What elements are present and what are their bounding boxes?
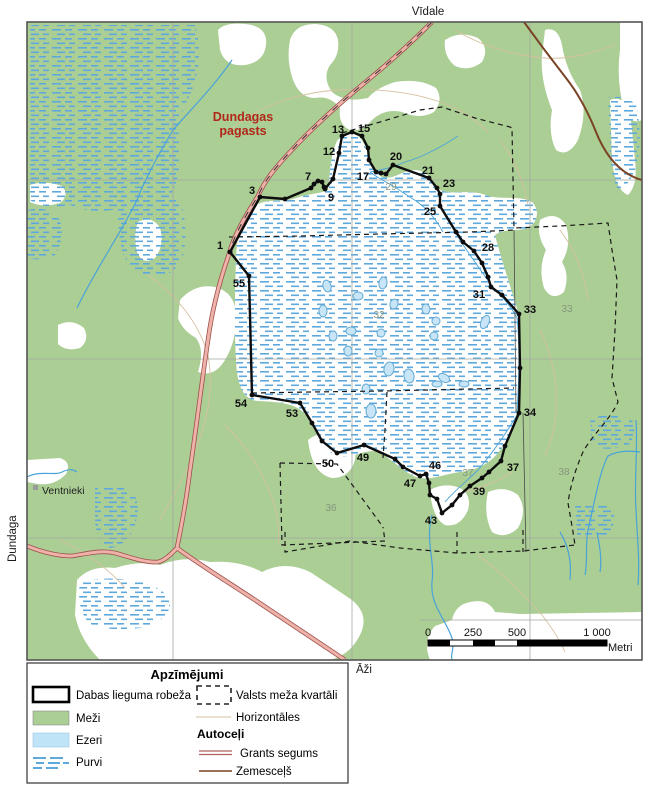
scale-bar-tick-label: 500: [508, 627, 526, 639]
boundary-point-dot: [454, 230, 459, 235]
boundary-point-dot: [366, 146, 371, 151]
scale-bar-tick-label: 1 000: [583, 627, 611, 639]
boundary-point-label: 9: [328, 192, 334, 204]
boundary-point-dot: [323, 187, 328, 192]
region-label: Dundagas pagasts: [213, 110, 273, 138]
boundary-point-dot: [335, 451, 340, 456]
boundary-point-label: 7: [305, 171, 311, 183]
boundary-point-dot: [480, 476, 485, 481]
legend-label-reserve-boundary: Dabas lieguma robeža: [76, 690, 192, 702]
boundary-point-dot: [350, 130, 355, 135]
legend-swatch-lakes: [33, 733, 69, 747]
map-svg: Vīdale Dundaga Āži: [0, 0, 650, 812]
boundary-point-label: 43: [425, 515, 437, 527]
boundary-point-label: 47: [404, 478, 416, 490]
boundary-point-dot: [424, 472, 429, 477]
boundary-point-dot: [316, 179, 321, 184]
boundary-point-dot: [312, 182, 317, 187]
boundary-point-dot: [309, 186, 314, 191]
legend-label-bogs: Purvi: [76, 757, 102, 769]
scale-bar-unit: Metri: [608, 642, 632, 654]
boundary-point-dot: [499, 459, 504, 464]
boundary-point-label: 33: [524, 304, 536, 316]
boundary-point-dot: [374, 170, 379, 175]
legend-title: Apzīmējumi: [151, 667, 224, 682]
boundary-point-dot: [468, 484, 473, 489]
boundary-point-label: 20: [390, 151, 402, 163]
boundary-point-dot: [418, 474, 423, 479]
boundary-point-dot: [489, 285, 494, 290]
boundary-point-dot: [472, 249, 477, 254]
boundary-point-label: 37: [507, 462, 519, 474]
forest-block-number: 38: [558, 467, 570, 478]
boundary-point-label: 46: [429, 460, 441, 472]
boundary-point-label: 3: [249, 185, 255, 197]
boundary-point-label: 53: [286, 408, 298, 420]
boundary-point-dot: [428, 493, 433, 498]
boundary-point-dot: [258, 195, 263, 200]
boundary-point-label: 55: [233, 278, 245, 290]
boundary-point-dot: [450, 503, 455, 508]
boundary-point-dot: [401, 465, 406, 470]
boundary-point-dot: [458, 493, 463, 498]
place-label: Ventnieki: [42, 485, 85, 497]
boundary-point-dot: [517, 411, 522, 416]
boundary-point-label: 13: [332, 124, 344, 136]
boundary-point-dot: [427, 481, 432, 486]
boundary-point-dot: [438, 204, 443, 209]
legend-label-forest: Meži: [76, 713, 100, 725]
boundary-point-label: 1: [217, 240, 223, 252]
scale-bar-tick-label: 250: [464, 627, 482, 639]
forest-block-number: 29: [385, 182, 397, 193]
neighbor-label-left: Dundaga: [7, 515, 19, 562]
boundary-point-dot: [379, 171, 384, 176]
neighbor-label-bottom: Āži: [356, 664, 372, 676]
scale-bar-tick-label: 0: [425, 627, 431, 639]
boundary-point-label: 21: [422, 165, 434, 177]
legend-label-blocks: Valsts meža kvartāli: [236, 690, 337, 702]
legend-swatch-reserve-boundary: [33, 687, 69, 702]
boundary-point-label: 25: [424, 206, 436, 218]
legend-roads-header: Autoceļi: [197, 727, 244, 741]
map-canvas: 293233363738 Ventnieki Dundagas pagasts …: [27, 22, 642, 660]
boundary-point-dot: [487, 470, 492, 475]
boundary-point-label: 34: [524, 407, 537, 419]
boundary-point-dot: [435, 497, 440, 502]
boundary-point-dot: [503, 444, 508, 449]
boundary-point-dot: [435, 186, 440, 191]
boundary-point-dot: [367, 158, 372, 163]
legend-label-gravel-road: Grants segums: [240, 748, 318, 760]
boundary-point-dot: [298, 401, 303, 406]
boundary-point-dot: [228, 250, 233, 255]
boundary-point-dot: [320, 439, 325, 444]
neighbor-label-top: Vīdale: [412, 6, 445, 18]
boundary-point-label: 15: [358, 123, 370, 135]
boundary-point-dot: [283, 197, 288, 202]
legend-swatch-forest: [33, 711, 69, 725]
boundary-point-dot: [438, 192, 443, 197]
boundary-point-label: 28: [482, 242, 494, 254]
map-page: Vīdale Dundaga Āži: [0, 0, 650, 812]
boundary-point-label: 54: [235, 398, 248, 410]
boundary-point-dot: [461, 240, 466, 245]
boundary-point-dot: [331, 177, 336, 182]
boundary-point-dot: [393, 457, 398, 462]
boundary-point-dot: [517, 312, 522, 317]
legend-box: Apzīmējumi Dabas lieguma robeža Meži Eze…: [27, 663, 348, 783]
boundary-point-dot: [518, 366, 523, 371]
region-label-line1: Dundagas: [213, 110, 273, 124]
boundary-point-label: 23: [443, 178, 455, 190]
boundary-point-dot: [320, 180, 325, 185]
boundary-point-dot: [440, 511, 445, 516]
boundary-point-label: 12: [323, 146, 335, 158]
forest-block-number: 32: [373, 310, 385, 321]
boundary-point-dot: [337, 151, 342, 156]
boundary-point-dot: [486, 275, 491, 280]
legend-label-lakes: Ezeri: [76, 735, 102, 747]
region-label-line2: pagasts: [219, 124, 266, 138]
place-marker-square: [33, 485, 38, 490]
boundary-point-label: 50: [322, 458, 334, 470]
boundary-point-dot: [250, 393, 255, 398]
boundary-point-label: 31: [473, 289, 485, 301]
boundary-point-dot: [391, 163, 396, 168]
forest-block-number: 37: [462, 468, 474, 479]
legend-label-dirt-road: Zemesceļš: [236, 766, 292, 778]
boundary-point-label: 17: [357, 171, 369, 183]
boundary-point-label: 39: [473, 486, 485, 498]
boundary-point-dot: [500, 293, 505, 298]
boundary-point-dot: [362, 443, 367, 448]
forest-block-number: 36: [325, 503, 337, 514]
boundary-point-dot: [310, 421, 315, 426]
forest-block-number: 33: [561, 304, 573, 315]
boundary-point-dot: [480, 261, 485, 266]
boundary-point-dot: [247, 274, 252, 279]
boundary-point-label: 49: [357, 452, 369, 464]
legend-label-contours: Horizontāles: [236, 712, 300, 724]
boundary-point-dot: [384, 172, 389, 177]
